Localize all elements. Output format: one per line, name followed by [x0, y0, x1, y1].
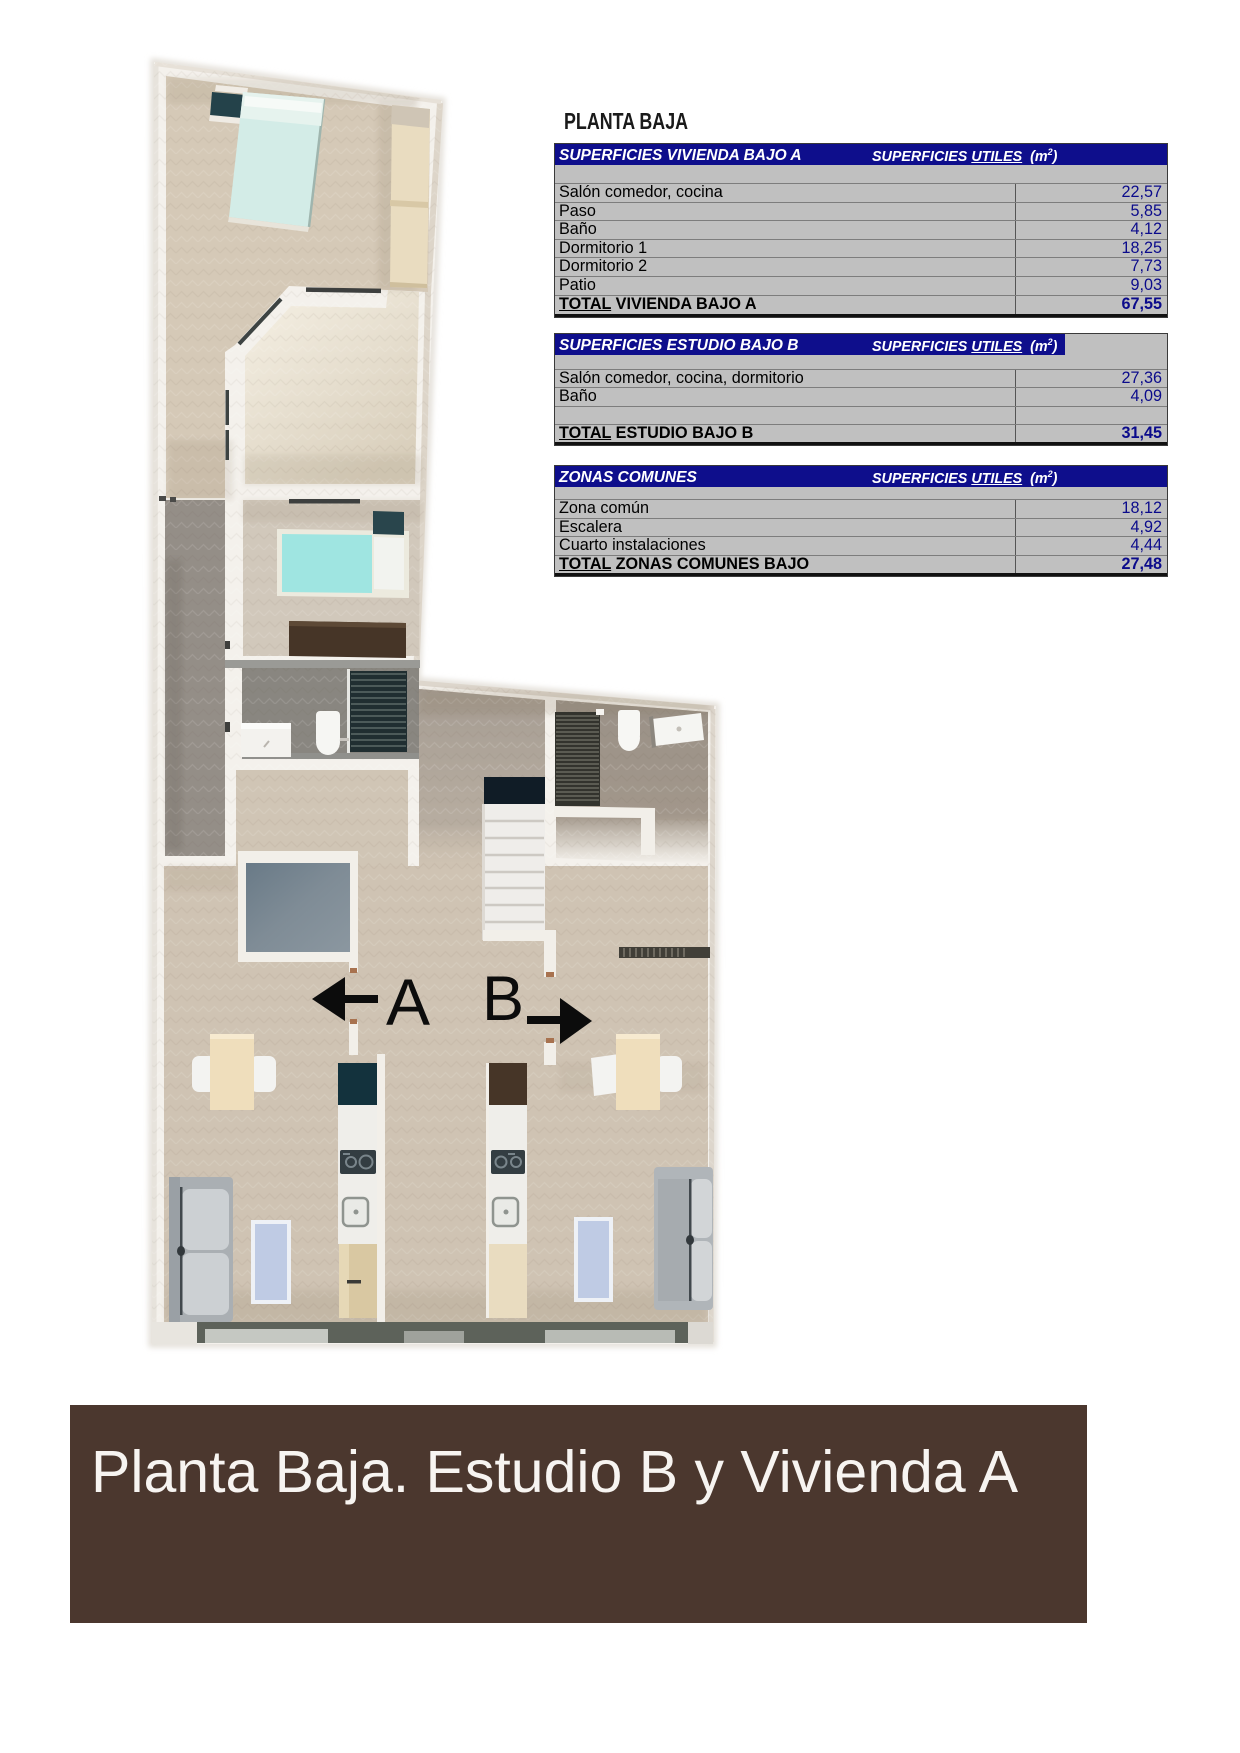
svg-text:A: A — [386, 965, 430, 1039]
svg-text:B: B — [482, 964, 524, 1034]
